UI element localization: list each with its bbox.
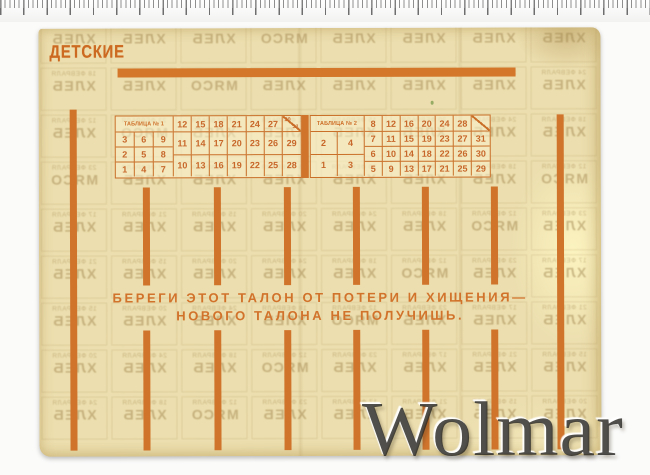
ghost-print-cell: 15 ФЕВРАЛЯХЛЕБ [460,27,526,62]
table-cell: 1 [116,161,135,176]
vertical-rule-bar [143,187,150,285]
ghost-date-text: 18 ФЕВРАЛЯ [42,72,106,79]
table-row: 10131619222528 [174,154,301,177]
table-cell: 9 [154,131,173,146]
table-header-label: ТАБЛИЦА № 2 [317,120,357,126]
table-row: 7111519232731 [365,131,490,146]
table-cell: 7 [154,161,173,176]
ghost-product-text: МЯСО [182,78,246,93]
card-title: ДЕТСКИЕ [49,42,124,63]
table-right-block: 1215182124273031111417202326291013161922… [174,116,301,176]
table-cell: 27 [454,131,472,146]
table-cell: 8 [365,116,383,131]
vertical-rule-bar [353,187,360,285]
ghost-date-text: 12 ФЕВРАЛЯ [181,27,245,31]
table-cell: 6 [365,146,383,161]
split-cell-top: 30 [285,117,291,123]
table-row: 591317212529 [365,161,490,176]
table-cell: 28 [454,116,472,131]
table-cell: 19 [418,131,436,146]
table-cell: 13 [192,154,210,177]
table-cell: 3 [337,153,364,176]
ghost-product-text: ХЛЕБ [322,78,386,93]
ghost-date-text: 18 ФЕВРАЛЯ [111,27,175,31]
table-header: ТАБЛИЦА № 2 [311,116,364,131]
calendar-table-1: ТАБЛИЦА № 136925814712151821242730311114… [115,115,302,178]
table-cell: 23 [436,131,454,146]
table-cell: 12 [174,116,192,131]
table-cell [472,116,490,131]
measuring-ruler [0,0,650,22]
table-cell: 18 [418,146,436,161]
warning-slogan-line1: БЕРЕГИ ЭТОТ ТАЛОН ОТ ПОТЕРИ И ХИЩЕНИЯ— [39,289,601,305]
split-cell-bottom: 31 [293,124,299,130]
table-cell: 18 [210,116,228,131]
table-row: 1215182124273031 [174,116,301,131]
table-cell: 4 [135,161,154,176]
ghost-print-cell: 24 ФЕВРАЛЯХЛЕБ [531,66,597,109]
table-row: 24 [311,131,364,154]
ghost-product-text: ХЛЕБ [112,78,176,93]
table-cell: 11 [383,131,401,146]
ghost-print-cell: 20 ФЕВРАЛЯХЛЕБ [530,27,596,62]
table-cell: 27 [264,116,282,131]
ghost-product-text: ХЛЕБ [532,77,596,92]
table-cell: 20 [228,131,246,154]
table-cell: 25 [264,154,282,177]
ghost-date-text: 24 ФЕВРАЛЯ [41,27,105,31]
calendar-table-2: ТАБЛИЦА № 224138121620242871115192327316… [310,115,491,178]
table-cell: 6 [135,131,154,146]
table-left-block: ТАБЛИЦА № 22413 [311,116,365,176]
ghost-print-cell: 23 ФЕВРАЛЯМЯСО [250,27,316,63]
vertical-rule-bar [70,110,78,451]
table-cell: 13 [400,161,418,176]
vertical-rule-bar [214,187,221,285]
table-cell: 2 [116,146,135,161]
vertical-rule-bar [422,187,429,285]
table-cell: 3 [116,131,135,146]
vertical-rule-bar [284,187,291,285]
ghost-product-text: ХЛЕБ [391,30,455,45]
ghost-print-cell: 17 ФЕВРАЛЯХЛЕБ [320,27,386,63]
ghost-product-text: МЯСО [251,31,315,46]
table-cell: 22 [246,154,264,177]
table-cell: 21 [436,161,454,176]
table-cell: 8 [154,146,173,161]
table-cell: 29 [472,161,490,176]
table-cell: 10 [174,154,192,177]
table-cell: 23 [246,131,264,154]
warning-slogan-line2: НОВОГО ТАЛОНА НЕ ПОЛУЧИШЬ. [39,307,601,323]
title-underline-bar [118,67,516,77]
ghost-product-text: ХЛЕБ [321,31,385,46]
table-header: ТАБЛИЦА № 1 [116,116,173,131]
table-cell: 5 [365,161,383,176]
table-cell: 21 [228,116,246,131]
table-cell: 19 [228,154,246,177]
table-right-block: 8121620242871115192327316101418222630591… [365,116,490,176]
paper-speck [431,101,434,105]
table-cell: 24 [436,116,454,131]
ghost-print-cell: 21 ФЕВРАЛЯХЛЕБ [390,27,456,63]
table-cell: 4 [337,131,364,154]
table-cell: 12 [383,116,401,131]
table-cell: 30 [472,146,490,161]
table-row: 81216202428 [365,116,490,131]
table-cell: 26 [454,146,472,161]
vertical-rule-bar [491,187,498,285]
table-cell: 25 [454,161,472,176]
ghost-print-cell: 12 ФЕВРАЛЯХЛЕБ [180,27,246,63]
table-row: 11141720232629 [174,131,301,154]
table-cell: 14 [192,131,210,154]
ghost-product-text: ХЛЕБ [42,78,106,93]
table-cell: 11 [174,131,192,154]
table-cell: 24 [246,116,264,131]
table-cell: 20 [418,116,436,131]
table-cell: 28 [283,154,301,177]
table-cell: 16 [210,154,228,177]
ghost-date-text: 17 ФЕВРАЛЯ [321,27,385,31]
table-cell: 1 [311,153,338,176]
table-cell: 17 [418,161,436,176]
ghost-product-text: ХЛЕБ [392,77,456,92]
table-row: 13 [311,153,364,176]
table-header-label: ТАБЛИЦА № 1 [124,121,164,127]
vertical-rule-bar [284,330,291,450]
table-row: 147 [116,161,173,176]
table-row: 369 [116,131,173,146]
ghost-date-text: 21 ФЕВРАЛЯ [391,27,455,30]
ghost-product-text: ХЛЕБ [461,30,525,45]
table-row: 6101418222630 [365,146,490,161]
ghost-print-cell: 18 ФЕВРАЛЯХЛЕБ [41,68,107,111]
ghost-product-text: ХЛЕБ [252,78,316,93]
table-cell: 16 [400,116,418,131]
table-cell: 17 [210,131,228,154]
table-cell: 14 [400,146,418,161]
table-cell: 10 [383,146,401,161]
watermark-text: Wolmar [362,392,624,469]
ghost-date-text: 23 ФЕВРАЛЯ [251,27,315,31]
ghost-date-text: 24 ФЕВРАЛЯ [532,70,596,77]
table-divider-bar [302,115,309,178]
table-cell: 2 [311,131,338,154]
ghost-date-text: 15 ФЕВРАЛЯ [461,27,525,30]
table-cell: 15 [400,131,418,146]
table-cell: 22 [436,146,454,161]
table-row: 258 [116,146,173,161]
table-cell: 15 [192,116,210,131]
table-cell: 9 [383,161,401,176]
table-cell: 7 [365,131,383,146]
ghost-product-text: ХЛЕБ [181,31,245,46]
table-cell: 5 [135,146,154,161]
vertical-rule-bar [143,330,150,450]
table-left-block: ТАБЛИЦА № 1369258147 [116,116,174,176]
vertical-rule-bar [214,330,221,450]
ghost-date-text: 20 ФЕВРАЛЯ [531,27,595,30]
table-cell: 3031 [283,116,301,131]
table-cell: 26 [264,131,282,154]
ghost-product-text: ХЛЕБ [531,30,595,45]
table-cell: 29 [283,131,301,154]
table-cell: 31 [472,131,490,146]
ghost-product-text: ХЛЕБ [462,77,526,92]
vertical-rule-bar [353,330,360,450]
